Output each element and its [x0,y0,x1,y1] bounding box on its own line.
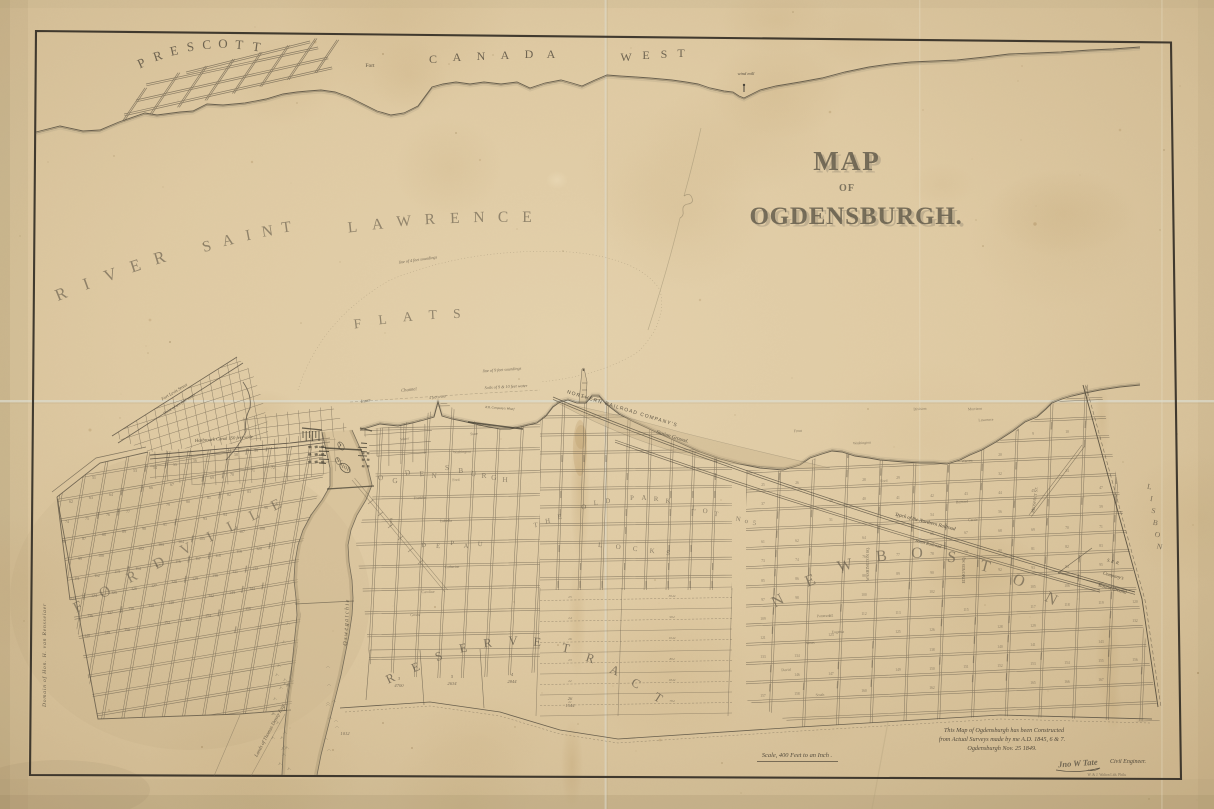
svg-text:149: 149 [104,631,110,635]
svg-text:118: 118 [1064,603,1069,607]
svg-text:69: 69 [1031,528,1035,532]
svg-text:Green: Green [410,613,419,617]
svg-text:85: 85 [761,579,765,583]
svg-text:102: 102 [929,590,935,594]
svg-text:75: 75 [85,517,89,521]
svg-text:108: 108 [259,527,265,531]
svg-text:119: 119 [1098,601,1103,605]
svg-text:74: 74 [65,520,69,524]
svg-text:G: G [491,473,497,482]
svg-text:P: P [630,495,634,502]
svg-text:54: 54 [930,513,934,517]
svg-text:Warren: Warren [961,459,972,464]
svg-text:116: 116 [175,560,181,564]
svg-text:167: 167 [1098,678,1104,682]
svg-text:51: 51 [92,476,96,480]
svg-text:165: 165 [1030,681,1036,685]
svg-text:L: L [594,500,599,507]
svg-text:Knox: Knox [389,518,393,527]
svg-text:David: David [781,668,791,672]
svg-text:C: C [429,52,437,66]
svg-text:wind mill: wind mill [738,71,756,76]
svg-text:D: D [605,498,610,505]
svg-text:Ogdensburgh Nov. 25 1849.: Ogdensburgh Nov. 25 1849. [967,745,1036,752]
svg-text:R: R [654,496,659,503]
svg-text:K: K [665,498,670,505]
svg-text:9: 9 [1032,432,1034,436]
svg-text:140: 140 [997,645,1003,649]
svg-text:115: 115 [963,608,968,612]
svg-text:10: 10 [1065,430,1069,434]
svg-text:62: 62 [795,539,799,543]
svg-text:125: 125 [895,630,901,634]
svg-text:54: 54 [153,466,157,470]
svg-text:125: 125 [111,591,117,595]
svg-text:S: S [453,306,461,321]
svg-text:105: 105 [199,537,205,541]
svg-text:124: 124 [91,594,97,598]
svg-text:41: 41 [896,496,900,500]
svg-text:Barnard: Barnard [956,500,969,505]
svg-text:162: 162 [929,686,935,690]
svg-text:L: L [347,219,358,237]
svg-text:123: 123 [70,597,76,601]
svg-text:117: 117 [1030,605,1035,609]
svg-text:Caroline: Caroline [421,590,434,594]
svg-text:2634: 2634 [447,681,457,686]
svg-text:86: 86 [795,577,799,581]
svg-text:1544: 1544 [565,703,575,708]
svg-text:Ford: Ford [452,478,459,482]
svg-text:WASHINGTON SQ.: WASHINGTON SQ. [865,547,870,581]
svg-text:from Actual Surveys made by m: from Actual Surveys made by me A.D. 1845… [939,736,1065,743]
svg-text:107: 107 [239,530,245,534]
svg-text:V: V [508,634,517,648]
svg-text:97: 97 [761,598,765,602]
svg-text:139: 139 [148,604,154,608]
svg-text:77: 77 [896,553,900,557]
svg-text:E: E [450,210,460,227]
svg-text:R: R [424,211,436,229]
svg-text:130: 130 [212,574,218,578]
svg-text:150: 150 [929,667,935,671]
svg-text:68: 68 [998,529,1002,533]
svg-text:120: 120 [1132,600,1138,604]
svg-text:G: G [392,476,398,485]
svg-text:704: 704 [669,699,674,703]
svg-text:83: 83 [247,490,251,494]
svg-text:4700: 4700 [394,683,404,688]
svg-text:90: 90 [930,571,934,575]
svg-text:Division: Division [913,407,926,412]
svg-text:137: 137 [107,611,113,615]
svg-text:26: 26 [568,696,573,701]
svg-text:153: 153 [1030,662,1036,666]
svg-text:152: 152 [997,664,1003,668]
svg-text:121: 121 [760,636,766,640]
svg-text:73: 73 [761,559,765,563]
svg-text:96: 96 [264,506,268,510]
svg-text:109: 109 [760,617,766,621]
svg-text:67: 67 [170,483,174,487]
svg-text:A: A [402,309,413,325]
svg-text:142: 142 [208,594,214,598]
svg-text:106: 106 [1064,584,1070,588]
svg-text:W: W [396,212,412,230]
svg-text:40: 40 [862,497,866,501]
svg-text:53: 53 [133,469,137,473]
svg-text:132: 132 [1132,619,1138,623]
svg-text:H: H [502,475,508,484]
svg-text:82: 82 [227,493,231,497]
svg-text:1012: 1012 [340,731,350,736]
svg-text:25: 25 [761,483,765,487]
svg-text:82: 82 [1065,545,1069,549]
svg-text:113: 113 [114,570,120,574]
svg-text:115: 115 [155,564,161,568]
svg-text:This Map of Ogdensburgh has be: This Map of Ogdensburgh has been Constru… [944,727,1065,734]
svg-text:L: L [598,541,603,549]
svg-text:OF: OF [839,183,855,194]
svg-text:99: 99 [78,557,82,561]
svg-text:118: 118 [215,554,221,558]
svg-text:71: 71 [1099,525,1103,529]
svg-text:119: 119 [236,550,242,554]
svg-text:131: 131 [232,570,238,574]
svg-text:117: 117 [195,557,201,561]
svg-text:26: 26 [568,637,572,641]
svg-text:28: 28 [862,478,866,482]
svg-text:158: 158 [794,692,800,696]
svg-text:Catherine: Catherine [445,565,460,569]
svg-text:166: 166 [1064,680,1070,684]
svg-text:Ford: Ford [880,479,887,483]
svg-text:N: N [477,49,486,63]
svg-text:70: 70 [1065,526,1069,530]
svg-text:T: T [235,37,244,53]
svg-text:62: 62 [69,500,73,504]
svg-text:James: James [805,641,815,645]
svg-text:OGDENSBURGH.: OGDENSBURGH. [749,203,962,230]
svg-text:Morrison: Morrison [968,407,982,412]
svg-text:150: 150 [124,628,130,632]
svg-text:32: 32 [998,472,1002,476]
svg-text:126: 126 [929,628,935,632]
svg-text:111: 111 [74,577,80,581]
svg-text:MAP: MAP [813,146,880,176]
svg-text:156: 156 [245,607,251,611]
svg-text:W: W [620,50,632,64]
svg-text:114: 114 [135,567,141,571]
svg-text:O: O [911,545,923,562]
svg-text:81: 81 [207,496,211,500]
svg-text:Franklin: Franklin [413,496,426,500]
svg-text:138: 138 [128,607,134,611]
svg-text:25: 25 [568,595,572,599]
svg-text:E: E [557,514,562,521]
svg-text:136: 136 [87,614,93,618]
svg-text:143: 143 [1098,640,1104,644]
svg-text:Fort: Fort [365,63,375,69]
svg-text:O: O [581,504,587,511]
svg-text:76: 76 [106,513,110,517]
svg-text:89: 89 [122,530,126,534]
svg-text:22: 22 [568,679,572,683]
svg-text:A: A [453,50,462,64]
svg-text:20: 20 [998,453,1002,457]
svg-text:128: 128 [171,580,177,584]
svg-text:103: 103 [158,543,164,547]
svg-text:153: 153 [185,618,191,622]
svg-text:B: B [458,466,464,475]
svg-text:43: 43 [964,492,968,496]
svg-text:144: 144 [249,587,255,591]
svg-text:78: 78 [930,552,934,556]
svg-text:E: E [642,48,649,62]
svg-text:Isabella: Isabella [440,519,452,523]
svg-text:58: 58 [234,453,238,457]
svg-text:126: 126 [131,587,137,591]
svg-text:61: 61 [761,540,765,544]
svg-text:Domain of Hon. H. van Renssela: Domain of Hon. H. van Rensselaer [41,603,48,708]
svg-text:92: 92 [998,568,1002,572]
svg-text:132: 132 [252,567,258,571]
svg-text:A: A [547,47,556,61]
svg-text:156: 156 [1132,658,1138,662]
svg-text:Washington: Washington [453,450,471,455]
svg-text:93: 93 [1031,566,1035,570]
svg-text:904: 904 [669,615,674,619]
svg-text:C: C [202,37,212,53]
svg-text:3044: 3044 [669,594,676,598]
svg-text:87: 87 [82,537,86,541]
svg-text:EDMONDS SQ.: EDMONDS SQ. [961,557,966,584]
svg-text:Carrie: Carrie [968,518,978,523]
svg-text:138: 138 [929,648,935,652]
svg-text:113: 113 [895,611,900,615]
svg-text:74: 74 [795,558,799,562]
svg-text:148: 148 [84,634,90,638]
svg-text:51: 51 [829,518,833,522]
svg-text:120: 120 [256,547,262,551]
svg-text:59: 59 [1099,505,1103,509]
svg-text:160: 160 [861,689,867,693]
svg-text:B: B [875,548,887,566]
svg-text:141: 141 [1030,643,1036,647]
svg-text:A: A [642,495,647,502]
svg-text:90: 90 [142,527,146,531]
svg-text:98: 98 [795,596,799,600]
svg-text:89: 89 [896,572,900,576]
svg-text:140: 140 [168,601,174,605]
svg-text:105: 105 [1030,585,1036,589]
svg-text:127: 127 [151,584,157,588]
svg-text:A: A [464,543,469,550]
svg-text:T: T [428,307,438,322]
svg-text:93: 93 [203,517,207,521]
svg-text:100: 100 [861,593,867,597]
svg-text:42: 42 [930,494,934,498]
svg-text:63: 63 [89,496,93,500]
svg-text:23: 23 [568,658,572,662]
svg-text:T: T [677,46,685,60]
svg-text:64: 64 [862,536,866,540]
svg-text:O: O [218,36,227,51]
svg-text:E: E [436,543,440,550]
svg-text:88: 88 [102,533,106,537]
svg-text:L: L [378,312,388,328]
svg-text:24: 24 [568,616,572,620]
svg-text:94: 94 [223,513,227,517]
svg-text:47: 47 [1099,486,1103,490]
svg-text:112: 112 [94,574,100,578]
svg-text:South: South [815,693,824,697]
svg-text:37: 37 [761,502,765,506]
svg-text:E: E [522,209,531,226]
svg-text:29: 29 [896,476,900,480]
svg-text:147: 147 [828,672,834,676]
svg-text:143: 143 [229,591,235,595]
svg-text:1044: 1044 [669,636,676,640]
svg-text:112: 112 [861,612,866,616]
svg-text:Scale, 400 Feet to an Inch .: Scale, 400 Feet to an Inch . [762,752,833,759]
svg-text:70: 70 [230,473,234,477]
svg-text:67: 67 [964,531,968,535]
svg-text:Eugenia: Eugenia [832,630,845,634]
svg-text:77: 77 [126,510,130,514]
svg-text:66: 66 [149,486,153,490]
svg-text:129: 129 [192,577,198,581]
svg-text:80: 80 [186,500,190,504]
svg-text:R: R [481,471,486,480]
svg-text:155: 155 [1098,659,1104,663]
svg-text:26: 26 [795,481,799,485]
svg-text:64: 64 [109,493,113,497]
svg-text:128: 128 [997,625,1003,629]
svg-text:Civil Engineer.: Civil Engineer. [1110,759,1146,765]
svg-text:S: S [661,47,668,61]
svg-text:149: 149 [895,668,901,672]
svg-text:C: C [498,209,508,226]
svg-text:Patterson: Patterson [817,614,831,618]
svg-text:State: State [470,432,478,436]
svg-text:A: A [501,48,510,62]
svg-text:S: S [666,549,671,557]
svg-text:2844: 2844 [507,679,517,684]
svg-text:102: 102 [138,547,144,551]
svg-text:H: H [545,518,551,526]
svg-text:804: 804 [669,657,674,661]
svg-text:S: S [445,463,449,472]
svg-text:D: D [525,47,534,61]
svg-text:K: K [649,547,655,555]
svg-text:Front: Front [794,429,803,433]
svg-text:O: O [615,543,621,551]
svg-text:146: 146 [794,673,800,677]
svg-text:O: O [702,508,708,515]
svg-text:Lawrence: Lawrence [978,418,993,423]
svg-text:151: 151 [963,665,969,669]
svg-text:L: L [692,505,697,512]
svg-text:W. & J. Walton Lith. Phila.: W. & J. Walton Lith. Phila. [1088,773,1127,777]
svg-text:81: 81 [1031,547,1035,551]
svg-text:44: 44 [998,491,1002,495]
svg-text:N: N [473,209,484,226]
svg-text:152: 152 [164,621,170,625]
svg-text:79: 79 [166,503,170,507]
svg-text:134: 134 [794,654,800,658]
svg-text:56: 56 [998,510,1002,514]
svg-text:U: U [478,541,484,548]
svg-text:83: 83 [1099,544,1103,548]
svg-text:133: 133 [760,655,766,659]
svg-text:91: 91 [163,523,167,527]
svg-text:55: 55 [173,463,177,467]
svg-text:154: 154 [1064,661,1070,665]
svg-text:104: 104 [178,540,184,544]
svg-text:154: 154 [205,614,211,618]
svg-text:69: 69 [210,476,214,480]
svg-text:95: 95 [1099,563,1103,567]
svg-text:157: 157 [760,694,766,698]
svg-text:129: 129 [1030,624,1036,628]
svg-text:1844: 1844 [669,678,676,682]
svg-text:100: 100 [98,554,104,558]
